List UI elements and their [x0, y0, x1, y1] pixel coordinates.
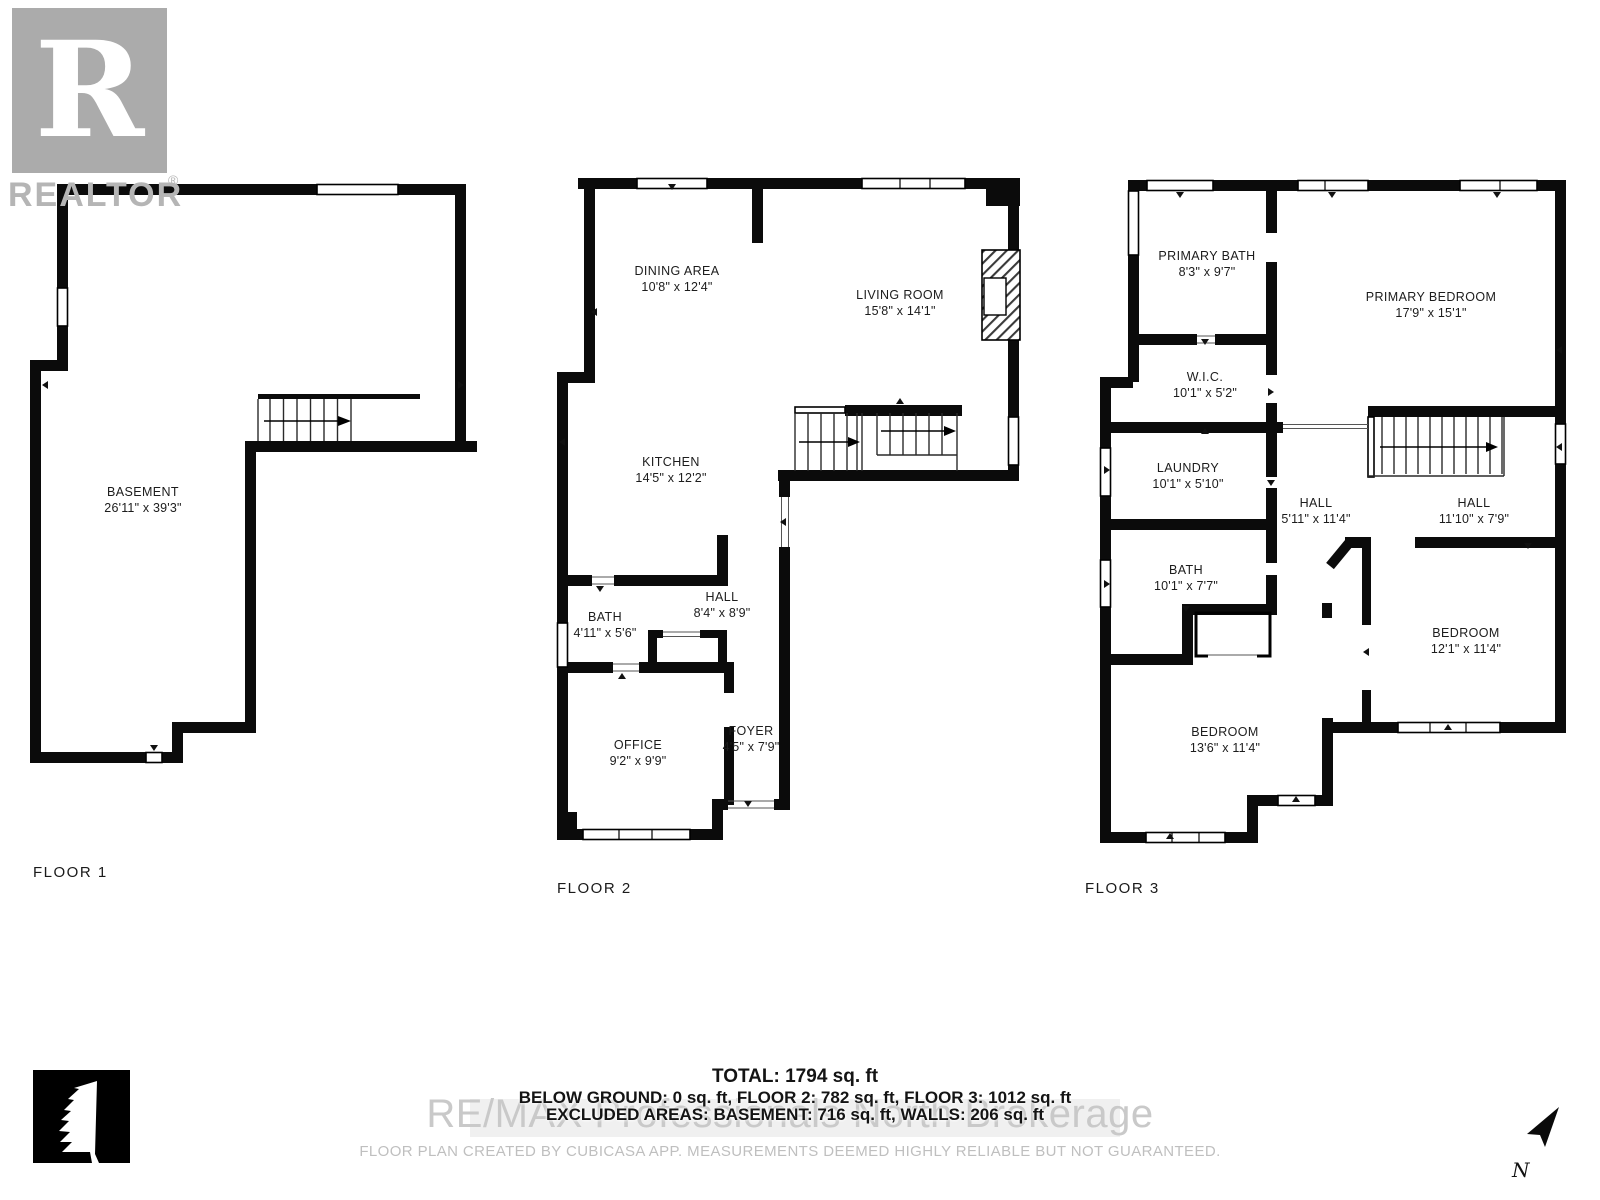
- room-dims: 14'5" x 12'2": [635, 470, 706, 486]
- room-label-kitchen: KITCHEN 14'5" x 12'2": [635, 454, 706, 486]
- floor3-stairs-icon: [1368, 417, 1504, 476]
- room-dims: 5'11" x 11'4": [1281, 511, 1350, 527]
- room-name: PRIMARY BEDROOM: [1366, 289, 1497, 305]
- room-dims: 8'4" x 8'9": [694, 605, 751, 621]
- room-label-hall-floor3-left: HALL 5'11" x 11'4": [1281, 495, 1350, 527]
- room-name: BATH: [1154, 562, 1218, 578]
- room-name: HALL: [1439, 495, 1509, 511]
- room-name: BEDROOM: [1190, 724, 1260, 740]
- floor1-stairs-icon: [258, 399, 351, 441]
- floor1-windows: [58, 185, 399, 763]
- floor2-fireplace-icon: [982, 250, 1020, 340]
- floor3-closet: [1196, 613, 1270, 658]
- room-dims: 10'1" x 5'10": [1152, 476, 1223, 492]
- room-name: HALL: [1281, 495, 1350, 511]
- room-name: KITCHEN: [635, 454, 706, 470]
- room-label-primary-bath: PRIMARY BATH 8'3" x 9'7": [1158, 248, 1255, 280]
- room-dims: 10'8" x 12'4": [635, 279, 720, 295]
- realtor-wordmark: REALTOR: [8, 178, 183, 212]
- room-name: BEDROOM: [1431, 625, 1501, 641]
- room-dims: 13'6" x 11'4": [1190, 740, 1260, 756]
- total-area-text: TOTAL: 1794 sq. ft: [712, 1066, 878, 1088]
- room-dims: 8'3" x 9'7": [1158, 264, 1255, 280]
- room-label-office: OFFICE 9'2" x 9'9": [610, 737, 667, 769]
- floor3-label: FLOOR 3: [1085, 880, 1160, 897]
- room-dims: 10'1" x 5'2": [1173, 385, 1237, 401]
- room-dims: 9'2" x 9'9": [610, 753, 667, 769]
- room-name: DINING AREA: [635, 263, 720, 279]
- floor3-chamfer-wall: [1330, 543, 1349, 566]
- room-label-bath-floor3: BATH 10'1" x 7'7": [1154, 562, 1218, 594]
- realtor-logo-letter: R: [35, 25, 145, 157]
- room-label-dining-area: DINING AREA 10'8" x 12'4": [635, 263, 720, 295]
- room-name: LAUNDRY: [1152, 460, 1223, 476]
- registered-trademark-icon: ®: [168, 172, 178, 188]
- room-label-primary-bedroom: PRIMARY BEDROOM 17'9" x 15'1": [1366, 289, 1497, 321]
- brokerage-logo-icon: [33, 1070, 130, 1163]
- room-dims: 11'10" x 7'9": [1439, 511, 1509, 527]
- room-name: W.I.C.: [1173, 369, 1237, 385]
- room-label-basement: BASEMENT 26'11" x 39'3": [104, 484, 181, 516]
- floor1-walls: [30, 184, 477, 763]
- room-label-laundry: LAUNDRY 10'1" x 5'10": [1152, 460, 1223, 492]
- room-label-living-room: LIVING ROOM 15'8" x 14'1": [856, 287, 944, 319]
- room-dims: 4'5" x 7'9": [723, 739, 780, 755]
- floor3-stairs-arrow: [1486, 442, 1498, 452]
- room-name: HALL: [694, 589, 751, 605]
- north-arrow-icon: [1500, 1095, 1580, 1165]
- room-label-bath-floor2: BATH 4'11" x 5'6": [573, 609, 636, 641]
- disclaimer-text: FLOOR PLAN CREATED BY CUBICASA APP. MEAS…: [359, 1143, 1220, 1160]
- room-label-foyer: FOYER 4'5" x 7'9": [723, 723, 780, 755]
- room-name: BATH: [573, 609, 636, 625]
- floor-plans-drawing: [0, 0, 1600, 1200]
- room-name: LIVING ROOM: [856, 287, 944, 303]
- floor1-stairs-arrow: [338, 416, 351, 426]
- room-name: BASEMENT: [104, 484, 181, 500]
- floor2-stairs-arrow-left: [848, 437, 860, 447]
- room-dims: 17'9" x 15'1": [1366, 305, 1497, 321]
- room-label-bedroom-right: BEDROOM 12'1" x 11'4": [1431, 625, 1501, 657]
- realtor-logo-icon: R: [12, 8, 167, 173]
- floor2-label: FLOOR 2: [557, 880, 632, 897]
- room-dims: 15'8" x 14'1": [856, 303, 944, 319]
- room-label-hall-floor3-right: HALL 11'10" x 7'9": [1439, 495, 1509, 527]
- room-label-bedroom-left: BEDROOM 13'6" x 11'4": [1190, 724, 1260, 756]
- room-name: PRIMARY BATH: [1158, 248, 1255, 264]
- room-label-hall-floor2: HALL 8'4" x 8'9": [694, 589, 751, 621]
- room-name: OFFICE: [610, 737, 667, 753]
- room-dims: 12'1" x 11'4": [1431, 641, 1501, 657]
- room-label-wic: W.I.C. 10'1" x 5'2": [1173, 369, 1237, 401]
- floor-plan-sheet: R REALTOR ® BASEMENT 26'11" x 39'3" DINI…: [0, 0, 1600, 1200]
- floor2-stairs-arrow-right: [944, 426, 956, 436]
- north-label: N: [1512, 1158, 1530, 1182]
- room-dims: 10'1" x 7'7": [1154, 578, 1218, 594]
- room-dims: 26'11" x 39'3": [104, 500, 181, 516]
- floor2-stairs-icon: [795, 413, 957, 471]
- floor1-label: FLOOR 1: [33, 864, 108, 881]
- room-dims: 4'11" x 5'6": [573, 625, 636, 641]
- room-name: FOYER: [723, 723, 780, 739]
- excluded-areas-text: EXCLUDED AREAS: BASEMENT: 716 sq. ft, WA…: [546, 1105, 1044, 1125]
